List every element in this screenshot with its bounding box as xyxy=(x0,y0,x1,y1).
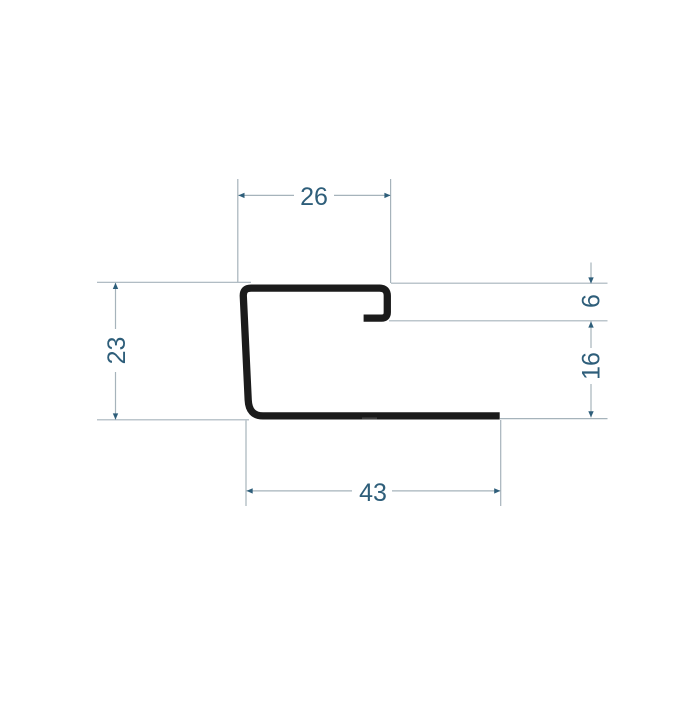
svg-text:23: 23 xyxy=(103,337,131,365)
svg-text:16: 16 xyxy=(578,352,606,380)
svg-text:43: 43 xyxy=(359,479,387,507)
svg-text:26: 26 xyxy=(300,183,328,211)
svg-text:6: 6 xyxy=(578,294,606,308)
